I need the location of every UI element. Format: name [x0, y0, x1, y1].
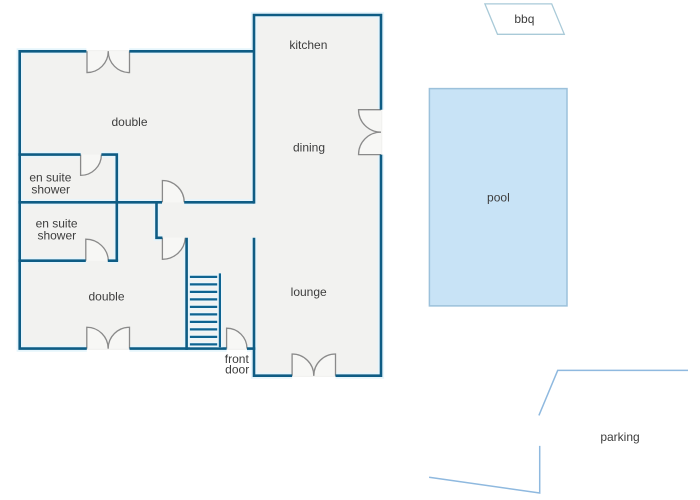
svg-text:door: door: [225, 363, 249, 377]
svg-text:shower: shower: [37, 228, 76, 242]
svg-text:pool: pool: [487, 191, 510, 205]
svg-text:double: double: [88, 290, 124, 304]
svg-text:kitchen: kitchen: [289, 38, 327, 52]
svg-text:parking: parking: [600, 430, 639, 444]
svg-text:lounge: lounge: [291, 285, 327, 299]
svg-text:double: double: [111, 115, 147, 129]
svg-text:bbq: bbq: [514, 12, 534, 26]
svg-text:dining: dining: [293, 141, 325, 155]
svg-text:shower: shower: [31, 182, 70, 196]
